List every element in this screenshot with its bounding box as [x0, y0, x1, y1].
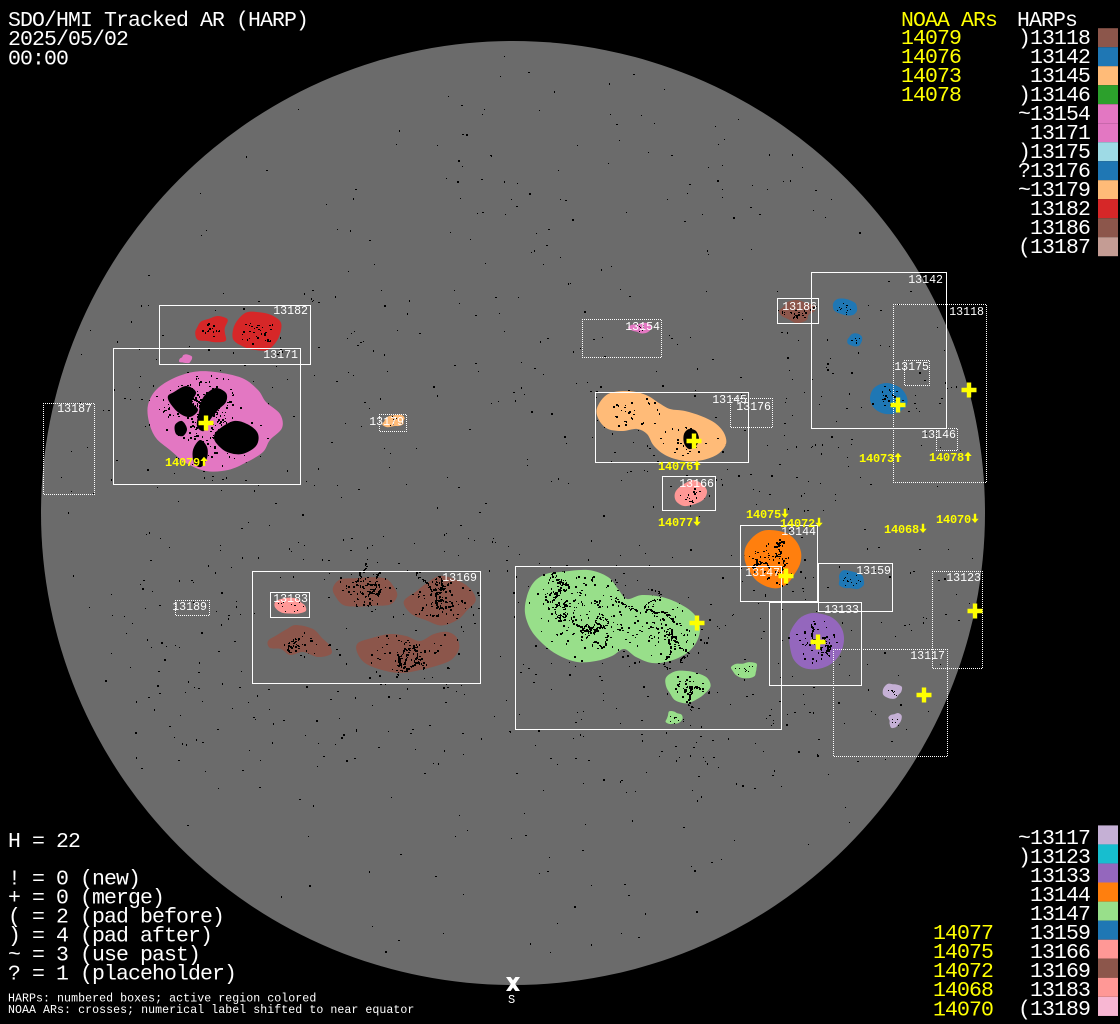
svg-text:NOAA ARs: crosses; numerical l: NOAA ARs: crosses; numerical label shift…	[8, 1004, 414, 1017]
svg-text:? = 1 (placeholder): ? = 1 (placeholder)	[8, 963, 236, 987]
svg-text:14079: 14079	[165, 456, 200, 470]
svg-text:13176: 13176	[736, 401, 771, 414]
svg-text:14070: 14070	[933, 998, 993, 1022]
svg-text:13189: 13189	[172, 601, 207, 614]
svg-text:13175: 13175	[894, 361, 929, 374]
svg-text:13117: 13117	[910, 650, 945, 663]
svg-text:14070: 14070	[936, 513, 971, 527]
svg-text:14073: 14073	[859, 452, 894, 466]
svg-text:13169: 13169	[442, 572, 477, 585]
svg-text:13182: 13182	[273, 305, 308, 318]
svg-text:13118: 13118	[949, 306, 984, 319]
svg-text:13159: 13159	[856, 565, 891, 578]
svg-text:S: S	[508, 993, 515, 1007]
svg-text:13147: 13147	[745, 567, 780, 580]
svg-text:13133: 13133	[824, 604, 859, 617]
svg-text:13146: 13146	[921, 429, 956, 442]
svg-text:14072: 14072	[780, 517, 815, 531]
svg-text:(13187: (13187	[1018, 236, 1090, 260]
svg-text:13187: 13187	[57, 403, 92, 416]
svg-text:13179: 13179	[369, 416, 404, 429]
svg-text:14068: 14068	[884, 523, 919, 537]
svg-text:13154: 13154	[625, 321, 660, 334]
svg-text:13166: 13166	[679, 478, 714, 491]
svg-text:14075: 14075	[746, 508, 781, 522]
svg-text:(13189: (13189	[1018, 998, 1090, 1022]
svg-text:00:00: 00:00	[8, 48, 68, 72]
svg-text:14078: 14078	[929, 451, 964, 465]
svg-text:13123: 13123	[946, 572, 981, 585]
svg-text:13183: 13183	[273, 593, 308, 606]
svg-text:14078: 14078	[901, 84, 961, 108]
svg-text:13186: 13186	[782, 301, 817, 314]
svg-text:13142: 13142	[908, 274, 943, 287]
svg-text:13171: 13171	[263, 349, 298, 362]
svg-text:14076: 14076	[658, 460, 693, 474]
svg-text:H = 22: H = 22	[8, 830, 80, 854]
svg-text:14077: 14077	[658, 516, 693, 530]
